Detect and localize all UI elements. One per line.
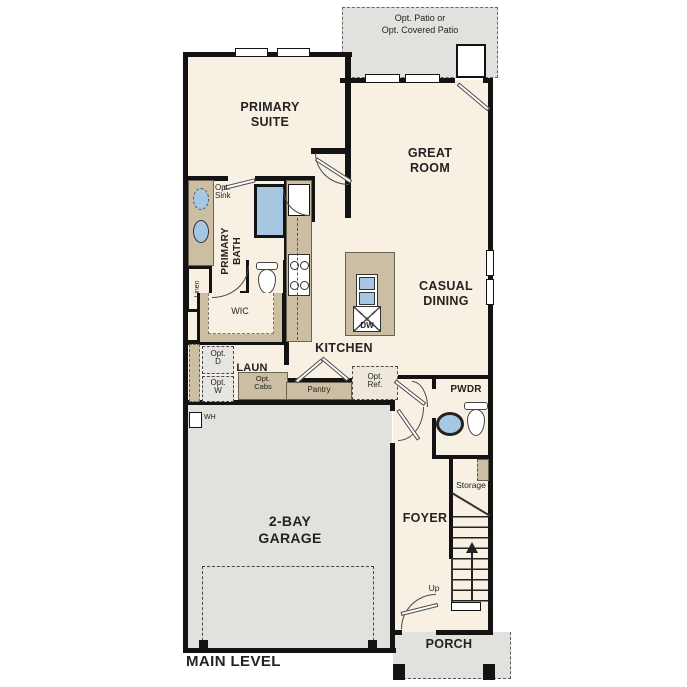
label-foyer: FOYER xyxy=(398,511,452,526)
label-wic: WIC xyxy=(212,307,268,316)
window xyxy=(235,48,268,57)
label-porch: PORCH xyxy=(418,637,480,652)
wall xyxy=(393,375,435,379)
window xyxy=(486,250,494,276)
wall xyxy=(436,630,493,635)
window xyxy=(277,48,310,57)
shower-icon xyxy=(254,184,286,238)
label-up: Up xyxy=(425,584,443,593)
stair-stringer-line xyxy=(451,492,490,516)
up-arrow-icon xyxy=(465,542,479,602)
stair-landing xyxy=(451,602,481,611)
wall xyxy=(199,640,208,649)
dishwasher-label: DW xyxy=(354,322,380,330)
wic-shelves xyxy=(200,293,282,342)
wall xyxy=(393,630,402,635)
wall xyxy=(183,52,188,653)
wall xyxy=(432,375,493,379)
label-garage: 2-BAY GARAGE xyxy=(228,513,352,547)
porch-post xyxy=(483,664,495,680)
stair-edge xyxy=(451,558,453,608)
label-primary-suite: PRIMARY SUITE xyxy=(210,100,330,130)
plan-title: MAIN LEVEL xyxy=(186,653,336,671)
label-storage: Storage xyxy=(450,481,492,490)
porch-post xyxy=(393,664,405,680)
label-pantry: Pantry xyxy=(288,386,350,394)
wall xyxy=(432,375,436,389)
label-opt-w: Opt. W xyxy=(203,379,233,396)
window xyxy=(365,74,400,83)
label-opt-cabs: Opt. Cabs xyxy=(240,375,286,392)
label-powder: PWDR xyxy=(444,384,488,396)
powder-toilet-icon xyxy=(462,402,490,440)
dishwasher-icon: DW xyxy=(353,306,381,332)
label-patio: Opt. Patio or Opt. Covered Patio xyxy=(352,13,488,36)
understair-storage-shelf xyxy=(477,459,489,481)
label-kitchen: KITCHEN xyxy=(302,341,386,356)
wall xyxy=(368,640,377,649)
stove-icon xyxy=(288,254,310,296)
sink-icon xyxy=(193,220,209,243)
label-opt-sink: Opt. Sink xyxy=(215,184,243,201)
label-water-heater: WH xyxy=(204,414,224,422)
patio-door xyxy=(456,44,486,78)
laundry-counter xyxy=(189,344,200,402)
island-sink-icon xyxy=(356,274,378,308)
garage-door-outline xyxy=(202,566,374,646)
optional-sink-icon xyxy=(193,188,209,210)
label-opt-d: Opt. D xyxy=(203,350,233,367)
window xyxy=(405,74,440,83)
water-heater-icon xyxy=(189,412,202,428)
label-linen: Linen xyxy=(194,269,204,309)
wic-room xyxy=(197,293,285,345)
label-primary-bath: PRIMARY BATH xyxy=(220,210,246,292)
label-great-room: GREAT ROOM xyxy=(388,146,472,176)
wall xyxy=(284,345,289,365)
label-opt-ref: Opt. Ref. xyxy=(354,373,396,390)
label-casual-dining: CASUAL DINING xyxy=(402,279,490,309)
wall xyxy=(390,443,395,653)
powder-sink-icon xyxy=(436,412,464,436)
counter-edge xyxy=(297,218,298,340)
floor-plan: DW Opt. Patio or Opt. Covered Patio xyxy=(0,0,687,687)
